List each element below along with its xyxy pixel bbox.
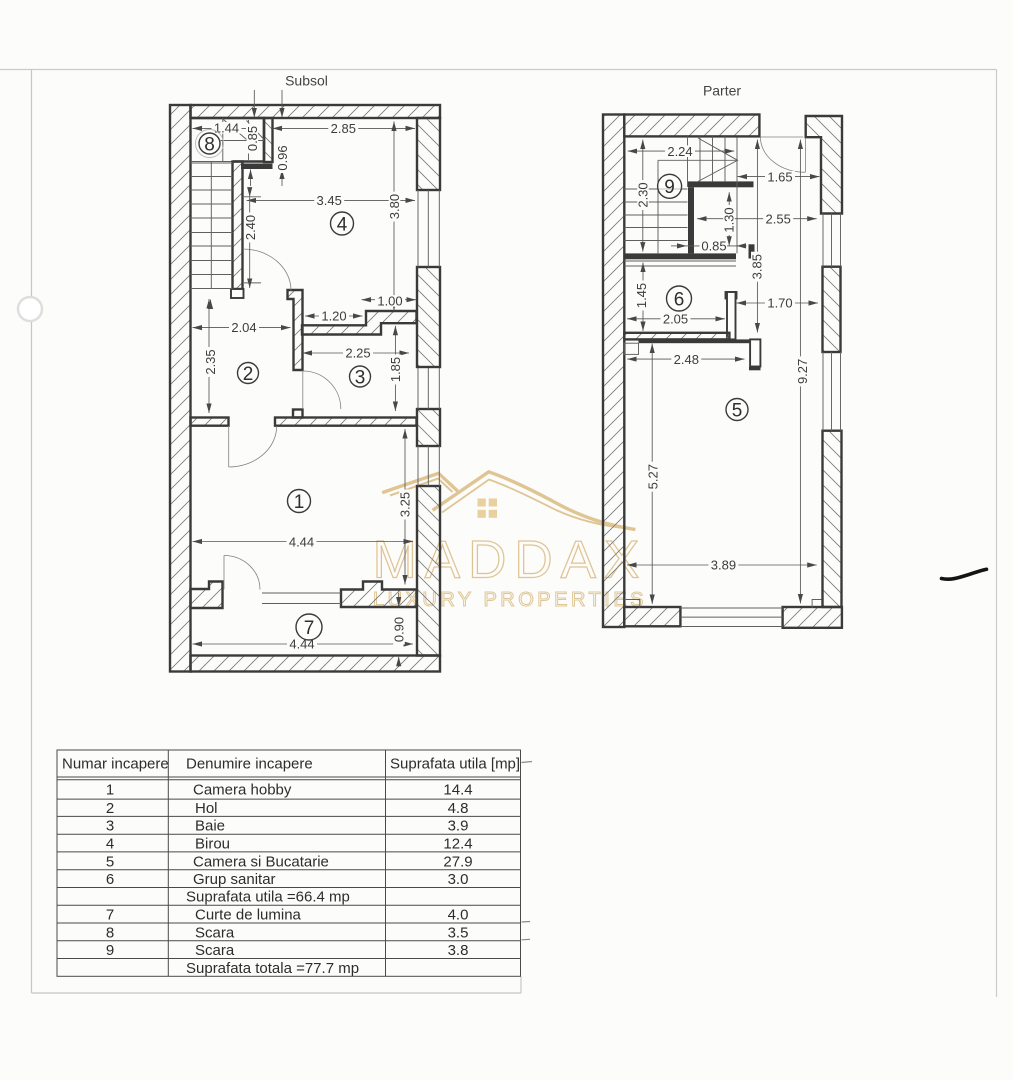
svg-text:3.9: 3.9	[448, 818, 469, 835]
svg-text:3.5: 3.5	[448, 925, 469, 942]
svg-text:1.85: 1.85	[388, 357, 403, 382]
svg-text:6: 6	[106, 871, 114, 888]
svg-text:7: 7	[106, 907, 114, 924]
svg-text:1.20: 1.20	[321, 309, 346, 324]
svg-text:0.85: 0.85	[701, 239, 726, 254]
svg-text:Scara: Scara	[195, 942, 235, 959]
svg-text:Denumire incapere: Denumire incapere	[186, 756, 313, 773]
svg-text:0.85: 0.85	[245, 126, 260, 151]
svg-text:7: 7	[304, 618, 315, 639]
svg-text:14.4: 14.4	[443, 782, 472, 799]
svg-text:4.8: 4.8	[448, 800, 469, 817]
svg-text:5: 5	[106, 854, 114, 871]
svg-text:2.05: 2.05	[663, 311, 688, 326]
svg-text:Subsol: Subsol	[285, 73, 328, 89]
svg-text:0.90: 0.90	[392, 617, 407, 642]
svg-text:8: 8	[204, 134, 215, 155]
svg-text:Camera si Bucatarie: Camera si Bucatarie	[193, 854, 329, 871]
svg-text:Suprafata totala =77.7 mp: Suprafata totala =77.7 mp	[186, 960, 359, 977]
svg-text:3.0: 3.0	[448, 871, 469, 888]
svg-text:2.25: 2.25	[345, 346, 370, 361]
svg-text:Parter: Parter	[703, 82, 741, 98]
svg-text:1.65: 1.65	[767, 169, 792, 184]
svg-text:2.40: 2.40	[243, 215, 258, 240]
svg-text:1: 1	[106, 782, 114, 799]
svg-text:2.35: 2.35	[203, 349, 218, 374]
svg-text:1: 1	[294, 492, 305, 513]
svg-text:9.27: 9.27	[795, 359, 810, 384]
svg-text:3.85: 3.85	[749, 254, 764, 279]
svg-text:Suprafata utila [mp]: Suprafata utila [mp]	[390, 756, 520, 773]
svg-text:3.89: 3.89	[711, 558, 736, 573]
svg-text:4.44: 4.44	[289, 534, 314, 549]
svg-text:Scara: Scara	[195, 925, 235, 942]
svg-text:Baie: Baie	[195, 818, 225, 835]
svg-text:3.25: 3.25	[398, 492, 413, 517]
svg-text:Curte de lumina: Curte de lumina	[195, 907, 302, 924]
svg-text:Hol: Hol	[195, 800, 218, 817]
svg-text:1.00: 1.00	[377, 294, 402, 309]
svg-text:2.04: 2.04	[231, 320, 256, 335]
svg-text:2.55: 2.55	[766, 211, 791, 226]
svg-text:2: 2	[243, 364, 254, 385]
svg-text:4: 4	[337, 214, 348, 235]
svg-text:5.27: 5.27	[646, 464, 661, 489]
svg-text:1.44: 1.44	[214, 121, 239, 136]
svg-text:2.24: 2.24	[667, 144, 692, 159]
svg-text:2.30: 2.30	[636, 182, 651, 207]
svg-text:3: 3	[106, 818, 114, 835]
svg-text:4.0: 4.0	[448, 907, 469, 924]
svg-text:3.45: 3.45	[317, 193, 342, 208]
svg-text:12.4: 12.4	[443, 836, 472, 853]
svg-text:4: 4	[106, 836, 114, 853]
svg-text:Birou: Birou	[195, 836, 230, 853]
svg-text:Grup sanitar: Grup sanitar	[193, 871, 276, 888]
svg-text:3.8: 3.8	[448, 942, 469, 959]
svg-text:1.30: 1.30	[722, 207, 737, 232]
svg-text:9: 9	[106, 942, 114, 959]
svg-text:8: 8	[106, 925, 114, 942]
svg-text:2: 2	[106, 800, 114, 817]
svg-text:Camera hobby: Camera hobby	[193, 782, 292, 799]
svg-text:1.45: 1.45	[634, 283, 649, 308]
svg-text:0.96: 0.96	[275, 145, 290, 170]
svg-text:5: 5	[732, 400, 743, 421]
svg-text:3.80: 3.80	[387, 194, 402, 219]
svg-text:2.85: 2.85	[331, 121, 356, 136]
svg-text:1.70: 1.70	[767, 296, 792, 311]
svg-text:Numar incapere: Numar incapere	[62, 756, 169, 773]
svg-text:3: 3	[355, 367, 366, 388]
svg-text:6: 6	[674, 289, 685, 310]
svg-text:27.9: 27.9	[443, 854, 472, 871]
svg-text:9: 9	[664, 177, 675, 198]
svg-text:Suprafata utila =66.4 mp: Suprafata utila =66.4 mp	[186, 889, 350, 906]
svg-text:2.48: 2.48	[674, 352, 699, 367]
